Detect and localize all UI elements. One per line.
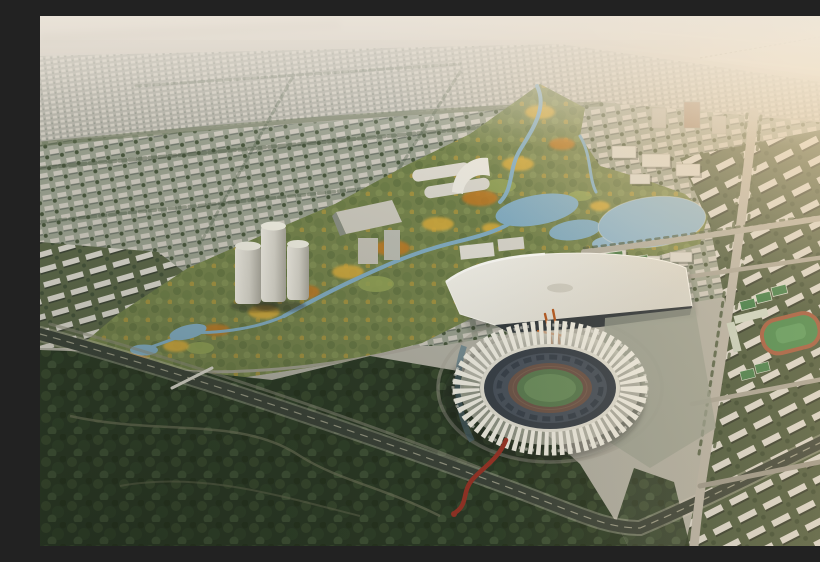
- render-canvas: [40, 16, 820, 546]
- lighting: [40, 16, 820, 546]
- aerial-city-render: Bird's-eye masterplan rendering of a new…: [40, 16, 820, 546]
- vignette: [40, 16, 820, 546]
